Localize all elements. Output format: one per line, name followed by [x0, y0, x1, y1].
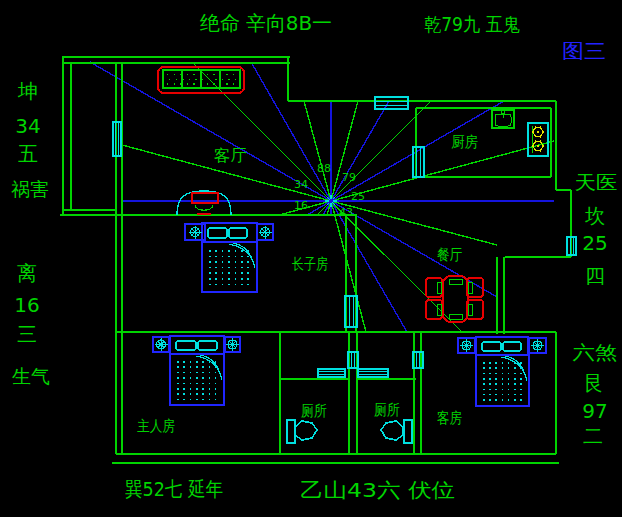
compass-number-e: 25 [351, 190, 365, 203]
bed-dot [483, 373, 485, 375]
bed-dot [514, 383, 516, 385]
bed-dot [502, 394, 504, 396]
label-left-trigram: 坤 [17, 79, 38, 103]
sofa-dot [233, 83, 234, 84]
dining-table [443, 276, 468, 322]
sofa-dot [187, 83, 188, 84]
bed-headboard [476, 337, 528, 355]
sofa-dot [226, 74, 227, 75]
sofa-dot [215, 79, 216, 80]
dining-chair-mark [437, 282, 441, 293]
bed-dot [483, 389, 485, 391]
bed-dot [215, 250, 217, 252]
furniture [153, 67, 548, 443]
bed-dot [196, 366, 198, 368]
bed-dot [508, 367, 510, 369]
label-left2-trigram: 离 [17, 261, 37, 285]
lamp-icon-dot [264, 231, 266, 233]
bed-dot [514, 378, 516, 380]
window-icon [318, 369, 345, 377]
room-label-toilet-right: 厕所 [374, 401, 400, 419]
bed-dot [209, 366, 211, 368]
bed-dot [222, 272, 224, 274]
bed-dot [215, 267, 217, 269]
bed-dot [228, 284, 230, 286]
bed-dot [495, 367, 497, 369]
bed-dot [247, 284, 249, 286]
bed-dot [209, 377, 211, 379]
figure-tag: 图三 [562, 39, 606, 63]
compass-number-n: 88 [317, 162, 331, 175]
bed-dot [183, 393, 185, 395]
bed-dot [215, 256, 217, 258]
sofa-dot [235, 79, 236, 80]
bed-dot [483, 367, 485, 369]
label-left-rank: 五 [18, 142, 38, 166]
bed-dot [209, 284, 211, 286]
bed-dot [483, 362, 485, 364]
lamp-icon-dot [465, 344, 467, 346]
dining-chair [467, 300, 483, 319]
bed-dot [190, 377, 192, 379]
sofa-dot [180, 83, 181, 84]
bed-dot [520, 394, 522, 396]
sofa-dot [228, 79, 229, 80]
bed-dot [190, 383, 192, 385]
window-icon [375, 97, 408, 109]
bed-dot [247, 278, 249, 280]
bed-dot [215, 272, 217, 274]
sofa-dot [207, 83, 208, 84]
compass-number-w: 34 [294, 178, 308, 191]
dining-table-mark [449, 314, 462, 319]
bed-dot [495, 362, 497, 364]
bed-dot [228, 261, 230, 263]
bed-dot [520, 389, 522, 391]
bed-dot [495, 373, 497, 375]
stove-burner-tick [540, 136, 541, 138]
sofa-dot [195, 79, 196, 80]
bed-dot [235, 278, 237, 280]
sofa-dot [167, 83, 168, 84]
label-right-trigram: 坎 [585, 204, 605, 228]
sofa-dot [182, 79, 183, 80]
lamp-icon-dot [536, 344, 538, 346]
compass-number-wsw: 16 [294, 199, 308, 212]
sofa-dot [167, 74, 168, 75]
compass-ray [251, 62, 331, 201]
bed-pillow [208, 228, 227, 238]
bed-dot [502, 373, 504, 375]
bed-dot [241, 267, 243, 269]
bed-dot [520, 373, 522, 375]
bed-dot [508, 373, 510, 375]
sofa-dot [202, 79, 203, 80]
bed-dot [196, 383, 198, 385]
room-label-dining: 餐厅 [437, 246, 462, 264]
bed-dot [241, 272, 243, 274]
bed-dot [514, 367, 516, 369]
bed-dot [489, 378, 491, 380]
bed-dot [514, 373, 516, 375]
sofa-dot [176, 79, 177, 80]
bed-dot [247, 267, 249, 269]
label-right-number: 25 [582, 231, 607, 255]
bed-dot [508, 399, 510, 401]
bed-dot [514, 399, 516, 401]
bed-dot [502, 389, 504, 391]
bed-dot [209, 267, 211, 269]
bed-dot [209, 393, 211, 395]
compass-ray [331, 101, 358, 201]
bed-dot [502, 362, 504, 364]
stove-burner-tick [535, 136, 536, 138]
bed-dot [183, 383, 185, 385]
bed-dot [508, 378, 510, 380]
bed-dot [196, 361, 198, 363]
toilet-bowl [295, 421, 317, 440]
label-right-rank: 四 [585, 264, 605, 288]
bed-dot [202, 361, 204, 363]
bed-dot [215, 361, 217, 363]
dining-table-mark [449, 279, 462, 284]
sofa-dot [200, 74, 201, 75]
bed-dot [209, 250, 211, 252]
bed-dot [202, 383, 204, 385]
bed-dot [228, 256, 230, 258]
bed-dot [241, 261, 243, 263]
label-left2-number: 16 [14, 293, 39, 317]
bed-dot [190, 388, 192, 390]
window-icon [358, 369, 388, 377]
sofa-dot [226, 83, 227, 84]
bed-dot [196, 393, 198, 395]
stove-burner-tick [540, 141, 541, 143]
bed-dot [520, 378, 522, 380]
bed-dot [196, 372, 198, 374]
bed-dot [495, 399, 497, 401]
lamp-icon-dot [231, 343, 233, 345]
bed-dot [520, 362, 522, 364]
floor-plan-svg: 绝命 辛向8B一 乾79九 五鬼 图三 坤 34 五 祸害 离 16 三 生气 … [0, 0, 622, 517]
bed-dot [177, 366, 179, 368]
bed-dot [514, 389, 516, 391]
bed-dot [209, 272, 211, 274]
bed-dot [215, 377, 217, 379]
bed-dot [228, 278, 230, 280]
toilet-tank [404, 420, 412, 443]
bed-dot [235, 261, 237, 263]
stove-burner-dot [537, 131, 540, 134]
toilet-bowl [381, 421, 403, 440]
label-left2-auspice: 生气 [12, 365, 50, 387]
bed-dot [235, 267, 237, 269]
sofa-dot [187, 74, 188, 75]
bed-dot [241, 256, 243, 258]
bed-dot [222, 256, 224, 258]
bed-dot [235, 256, 237, 258]
bed-headboard [170, 336, 224, 354]
bed-dot [190, 399, 192, 401]
bed-dot [222, 267, 224, 269]
sofa-dot [213, 74, 214, 75]
bed-dot [209, 261, 211, 263]
sofa-dot [207, 74, 208, 75]
bed-dot [241, 250, 243, 252]
bed-dot [209, 256, 211, 258]
bed-dot [215, 284, 217, 286]
bed-dot [483, 394, 485, 396]
stove-burner-tick [535, 141, 536, 143]
bed-dot [222, 261, 224, 263]
label-left2-rank: 三 [17, 322, 37, 346]
bed-dot [209, 383, 211, 385]
bed-dot [235, 272, 237, 274]
bed-dot [508, 383, 510, 385]
bed-dot [489, 373, 491, 375]
label-left-number: 34 [15, 114, 40, 138]
bed-dot [495, 389, 497, 391]
stove-burner-tick [535, 127, 536, 129]
sofa-dot [189, 79, 190, 80]
bed-dot [196, 399, 198, 401]
bed-pillow [229, 228, 247, 238]
bed-dot [489, 389, 491, 391]
bed-dot [215, 393, 217, 395]
bed-dot [183, 399, 185, 401]
bed-dot [241, 278, 243, 280]
bed-dot [209, 278, 211, 280]
bed-dot [502, 378, 504, 380]
sofa-dot [193, 74, 194, 75]
stove-burner-tick [540, 150, 541, 152]
bed-dot [489, 362, 491, 364]
lamp-icon-dot [194, 231, 196, 233]
label-right2-trigram: 艮 [584, 371, 604, 395]
sofa-dot [174, 83, 175, 84]
bed-dot [489, 383, 491, 385]
bed-dot [215, 399, 217, 401]
room-label-toilet-left: 厕所 [301, 402, 327, 420]
bed-dot [508, 394, 510, 396]
bed-dot [247, 261, 249, 263]
bed-pillow [482, 342, 501, 351]
toilet-tank [287, 420, 295, 443]
bed-pillow [198, 341, 217, 350]
bed-dot [196, 377, 198, 379]
bed-dot [235, 250, 237, 252]
bed-dot [183, 366, 185, 368]
label-right2-number: 97 [582, 399, 607, 423]
stove-burner-tick [535, 150, 536, 152]
bed-dot [190, 361, 192, 363]
bed-dot [495, 394, 497, 396]
label-top-northeast: 乾79九 五鬼 [424, 13, 520, 35]
bed-dot [202, 399, 204, 401]
bed-dot [502, 399, 504, 401]
bed-dot [183, 388, 185, 390]
bed-dot [202, 393, 204, 395]
room-label-master: 主人房 [137, 417, 175, 435]
bed-dot [183, 377, 185, 379]
bed-pillow [503, 342, 521, 351]
compass-ray [331, 101, 504, 201]
room-label-guest: 客房 [437, 409, 462, 427]
bed-dot [177, 393, 179, 395]
sofa-dot [180, 74, 181, 75]
bed-dot [502, 383, 504, 385]
bed-dot [177, 383, 179, 385]
label-right-auspice: 天医 [575, 171, 618, 193]
bed-dot [196, 388, 198, 390]
bed-dot [177, 372, 179, 374]
bed-dot [183, 361, 185, 363]
bed-dot [495, 378, 497, 380]
bed-dot [222, 250, 224, 252]
label-right2-rank: 二 [583, 424, 603, 448]
bed-dot [177, 399, 179, 401]
bed-dot [489, 399, 491, 401]
lamp-icon-dot [160, 343, 162, 345]
sofa-dot [222, 79, 223, 80]
tv-base-arc [195, 205, 213, 210]
bed-dot [177, 361, 179, 363]
label-left-auspice: 祸害 [11, 178, 49, 200]
center-marker-dot [329, 199, 333, 203]
room-label-living: 客厅 [214, 146, 247, 165]
bed-dot [514, 394, 516, 396]
bed-dot [202, 372, 204, 374]
stove-burner-tick [540, 127, 541, 129]
bed-dot [228, 250, 230, 252]
bed-dot [483, 399, 485, 401]
bed-dot [489, 394, 491, 396]
bed-dot [215, 388, 217, 390]
bed-dot [209, 399, 211, 401]
bed-dot [183, 372, 185, 374]
bed-pillow [176, 341, 196, 350]
sofa-dot [169, 79, 170, 80]
dining-chair [426, 278, 442, 297]
bed-dot [222, 284, 224, 286]
bed-dot [508, 389, 510, 391]
sofa-dot [213, 83, 214, 84]
sofa-dot [220, 83, 221, 84]
bed-dot [190, 393, 192, 395]
compass-rays [90, 62, 554, 332]
bed-dot [209, 388, 211, 390]
bed-dot [202, 377, 204, 379]
sofa-dot [209, 79, 210, 80]
bed-dot [215, 383, 217, 385]
bed-dot [508, 362, 510, 364]
compass-number-ne: 79 [342, 171, 356, 184]
compass-ray [304, 101, 331, 201]
compass-number-s: 43 [339, 206, 353, 219]
stove-burner-dot [537, 145, 540, 148]
bed-dot [202, 366, 204, 368]
label-bottom-south: 乙山43六 伏位 [300, 478, 455, 502]
label-right2-auspice: 六煞 [573, 341, 618, 363]
bed-dot [483, 383, 485, 385]
bed-dot [177, 388, 179, 390]
sofa-dot [200, 83, 201, 84]
bed-dot [489, 367, 491, 369]
bed-dot [495, 383, 497, 385]
compass-ray [192, 62, 331, 201]
bed-dot [235, 284, 237, 286]
bed-dot [190, 366, 192, 368]
sofa-dot [193, 83, 194, 84]
room-label-eldest-son: 长子房 [292, 255, 328, 273]
bed-dot [247, 272, 249, 274]
bed-dot [247, 256, 249, 258]
bed-dot [190, 372, 192, 374]
bed-dot [483, 378, 485, 380]
bed-dot [520, 399, 522, 401]
window-icon [413, 147, 424, 177]
label-top-north: 绝命 辛向8B一 [199, 11, 332, 35]
sofa-dot [174, 74, 175, 75]
bed-dot [215, 372, 217, 374]
bed-dot [241, 284, 243, 286]
sofa-dot [233, 74, 234, 75]
bed-dot [502, 367, 504, 369]
bed-dot [228, 267, 230, 269]
bed-dot [215, 261, 217, 263]
label-bottom-southwest: 巽52七 延年 [125, 477, 223, 501]
bed-dot [215, 278, 217, 280]
room-label-kitchen: 厨房 [451, 133, 478, 151]
bed-dot [209, 372, 211, 374]
bed-dot [228, 272, 230, 274]
bed-dot [222, 278, 224, 280]
bed-dot [520, 383, 522, 385]
bed-dot [202, 388, 204, 390]
bed-dot [177, 377, 179, 379]
sofa-dot [220, 74, 221, 75]
